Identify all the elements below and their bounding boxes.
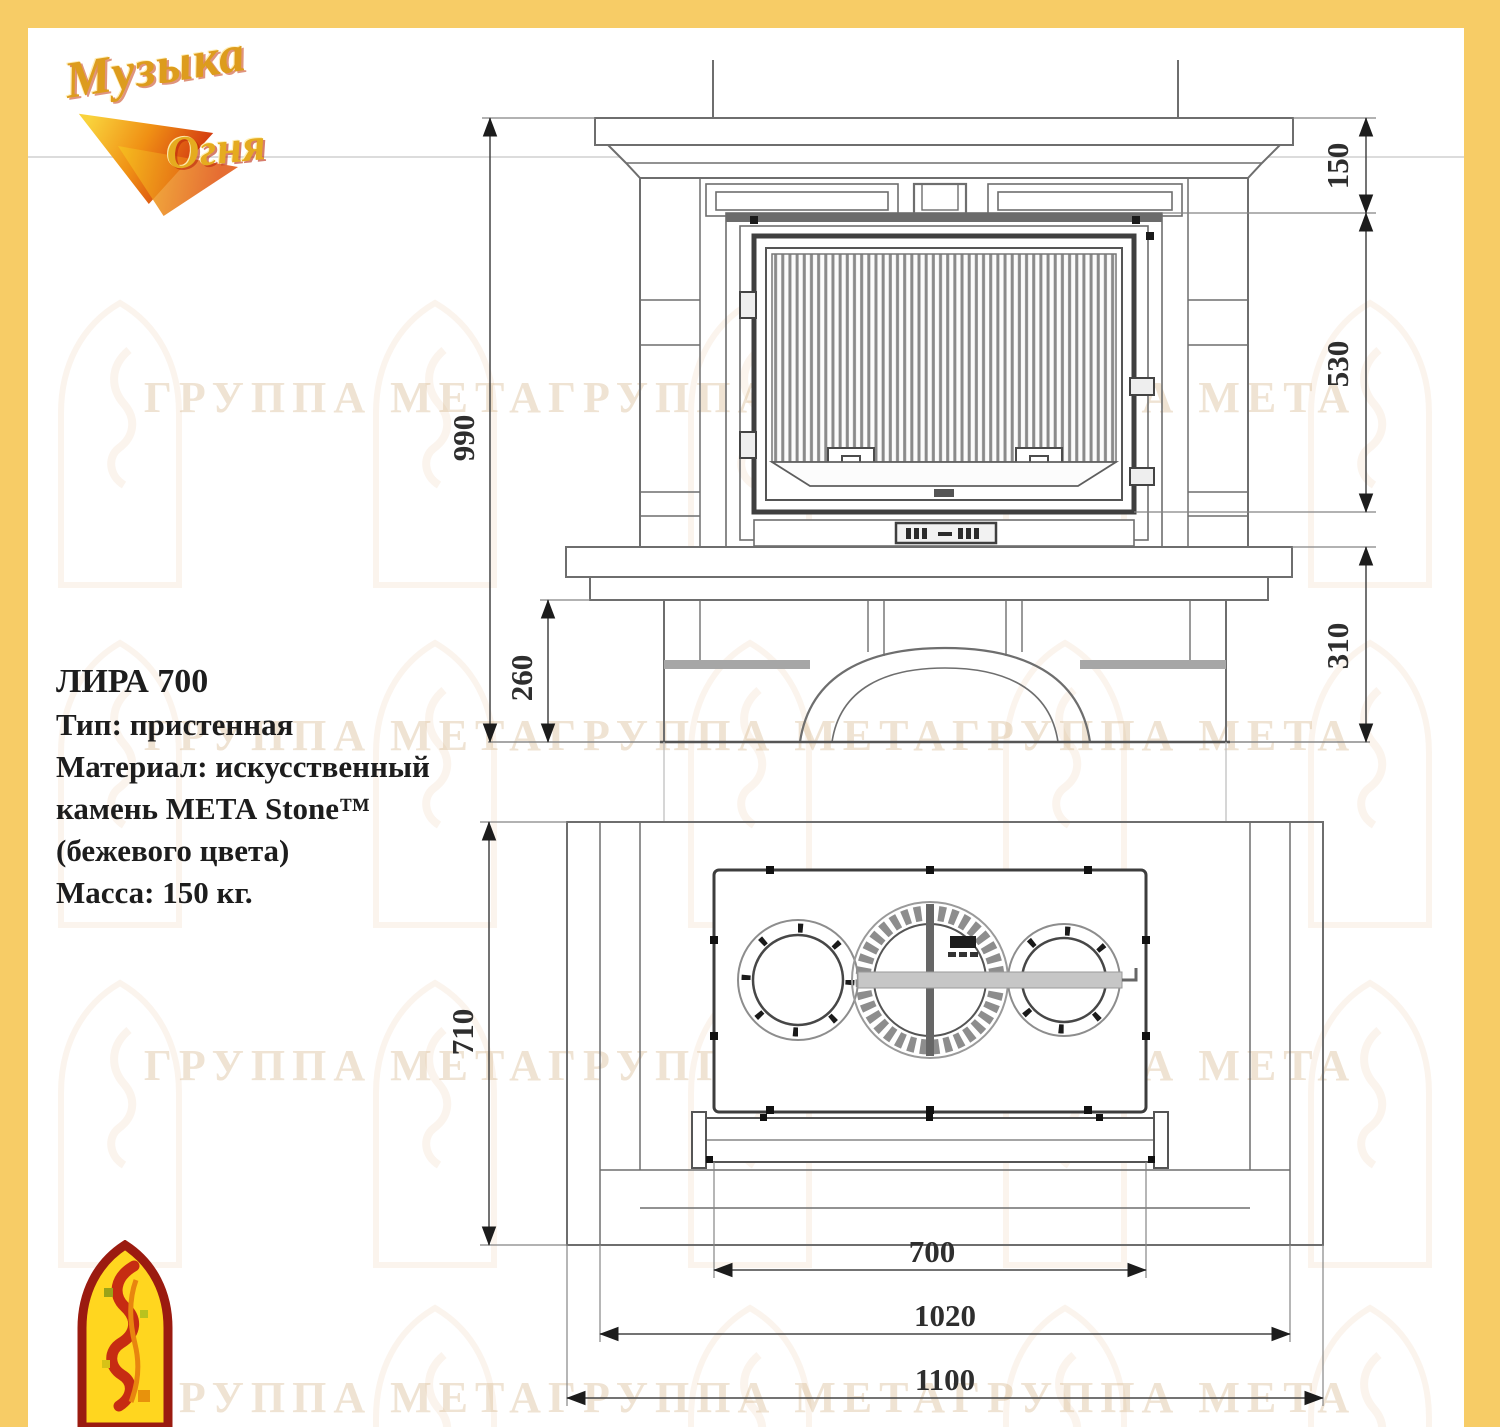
door-tray — [772, 462, 1116, 486]
plan-firebox-unit — [710, 866, 1150, 1114]
hearth-slabs — [566, 547, 1292, 600]
dim-label-710: 710 — [445, 1009, 480, 1056]
plan-front-strip — [692, 1112, 1168, 1168]
page-border-right — [1464, 0, 1500, 1427]
dim-label-310: 310 — [1320, 623, 1355, 670]
dim-label-990: 990 — [446, 415, 481, 462]
dim-label-700: 700 — [909, 1234, 956, 1269]
plan-view — [567, 822, 1323, 1245]
dim-label-260: 260 — [504, 655, 539, 702]
page-border-left — [0, 0, 28, 1427]
logo-word-ognya: Огня — [164, 117, 268, 180]
dim-label-530: 530 — [1320, 341, 1355, 388]
spec-line: Материал: искусственный — [56, 746, 430, 788]
dim-label-150: 150 — [1320, 143, 1355, 190]
product-title: ЛИРА 700 — [56, 660, 430, 704]
spec-line: камень МЕТА Stone™ — [56, 788, 430, 830]
music-of-fire-logo: Музыка Огня — [58, 38, 358, 213]
page-border-top — [0, 0, 1500, 28]
spec-sheet-page: ГРУППА МЕТАГРУППА МЕТАГРУППА МЕТА ГРУППА… — [0, 0, 1500, 1427]
logo-word-muzyka: Музыка — [61, 24, 250, 111]
view-connector-lines — [664, 742, 1226, 822]
firebox-door — [740, 236, 1154, 512]
meta-arch-logo — [74, 1240, 176, 1427]
spec-line: Тип: пристенная — [56, 704, 430, 746]
chimney-stub-lines — [713, 60, 1178, 118]
dim-label-1020: 1020 — [914, 1298, 976, 1333]
product-spec-block: ЛИРА 700 Тип: пристенная Материал: искус… — [56, 660, 430, 914]
front-view — [488, 60, 1370, 742]
dim-label-1100: 1100 — [915, 1362, 975, 1397]
door-grille — [772, 254, 1116, 462]
mantel-shelf — [595, 118, 1293, 178]
spec-line: Масса: 150 кг. — [56, 872, 430, 914]
vent-strip — [754, 520, 1134, 546]
base-with-arch — [488, 600, 1370, 742]
spec-line: (бежевого цвета) — [56, 830, 430, 872]
